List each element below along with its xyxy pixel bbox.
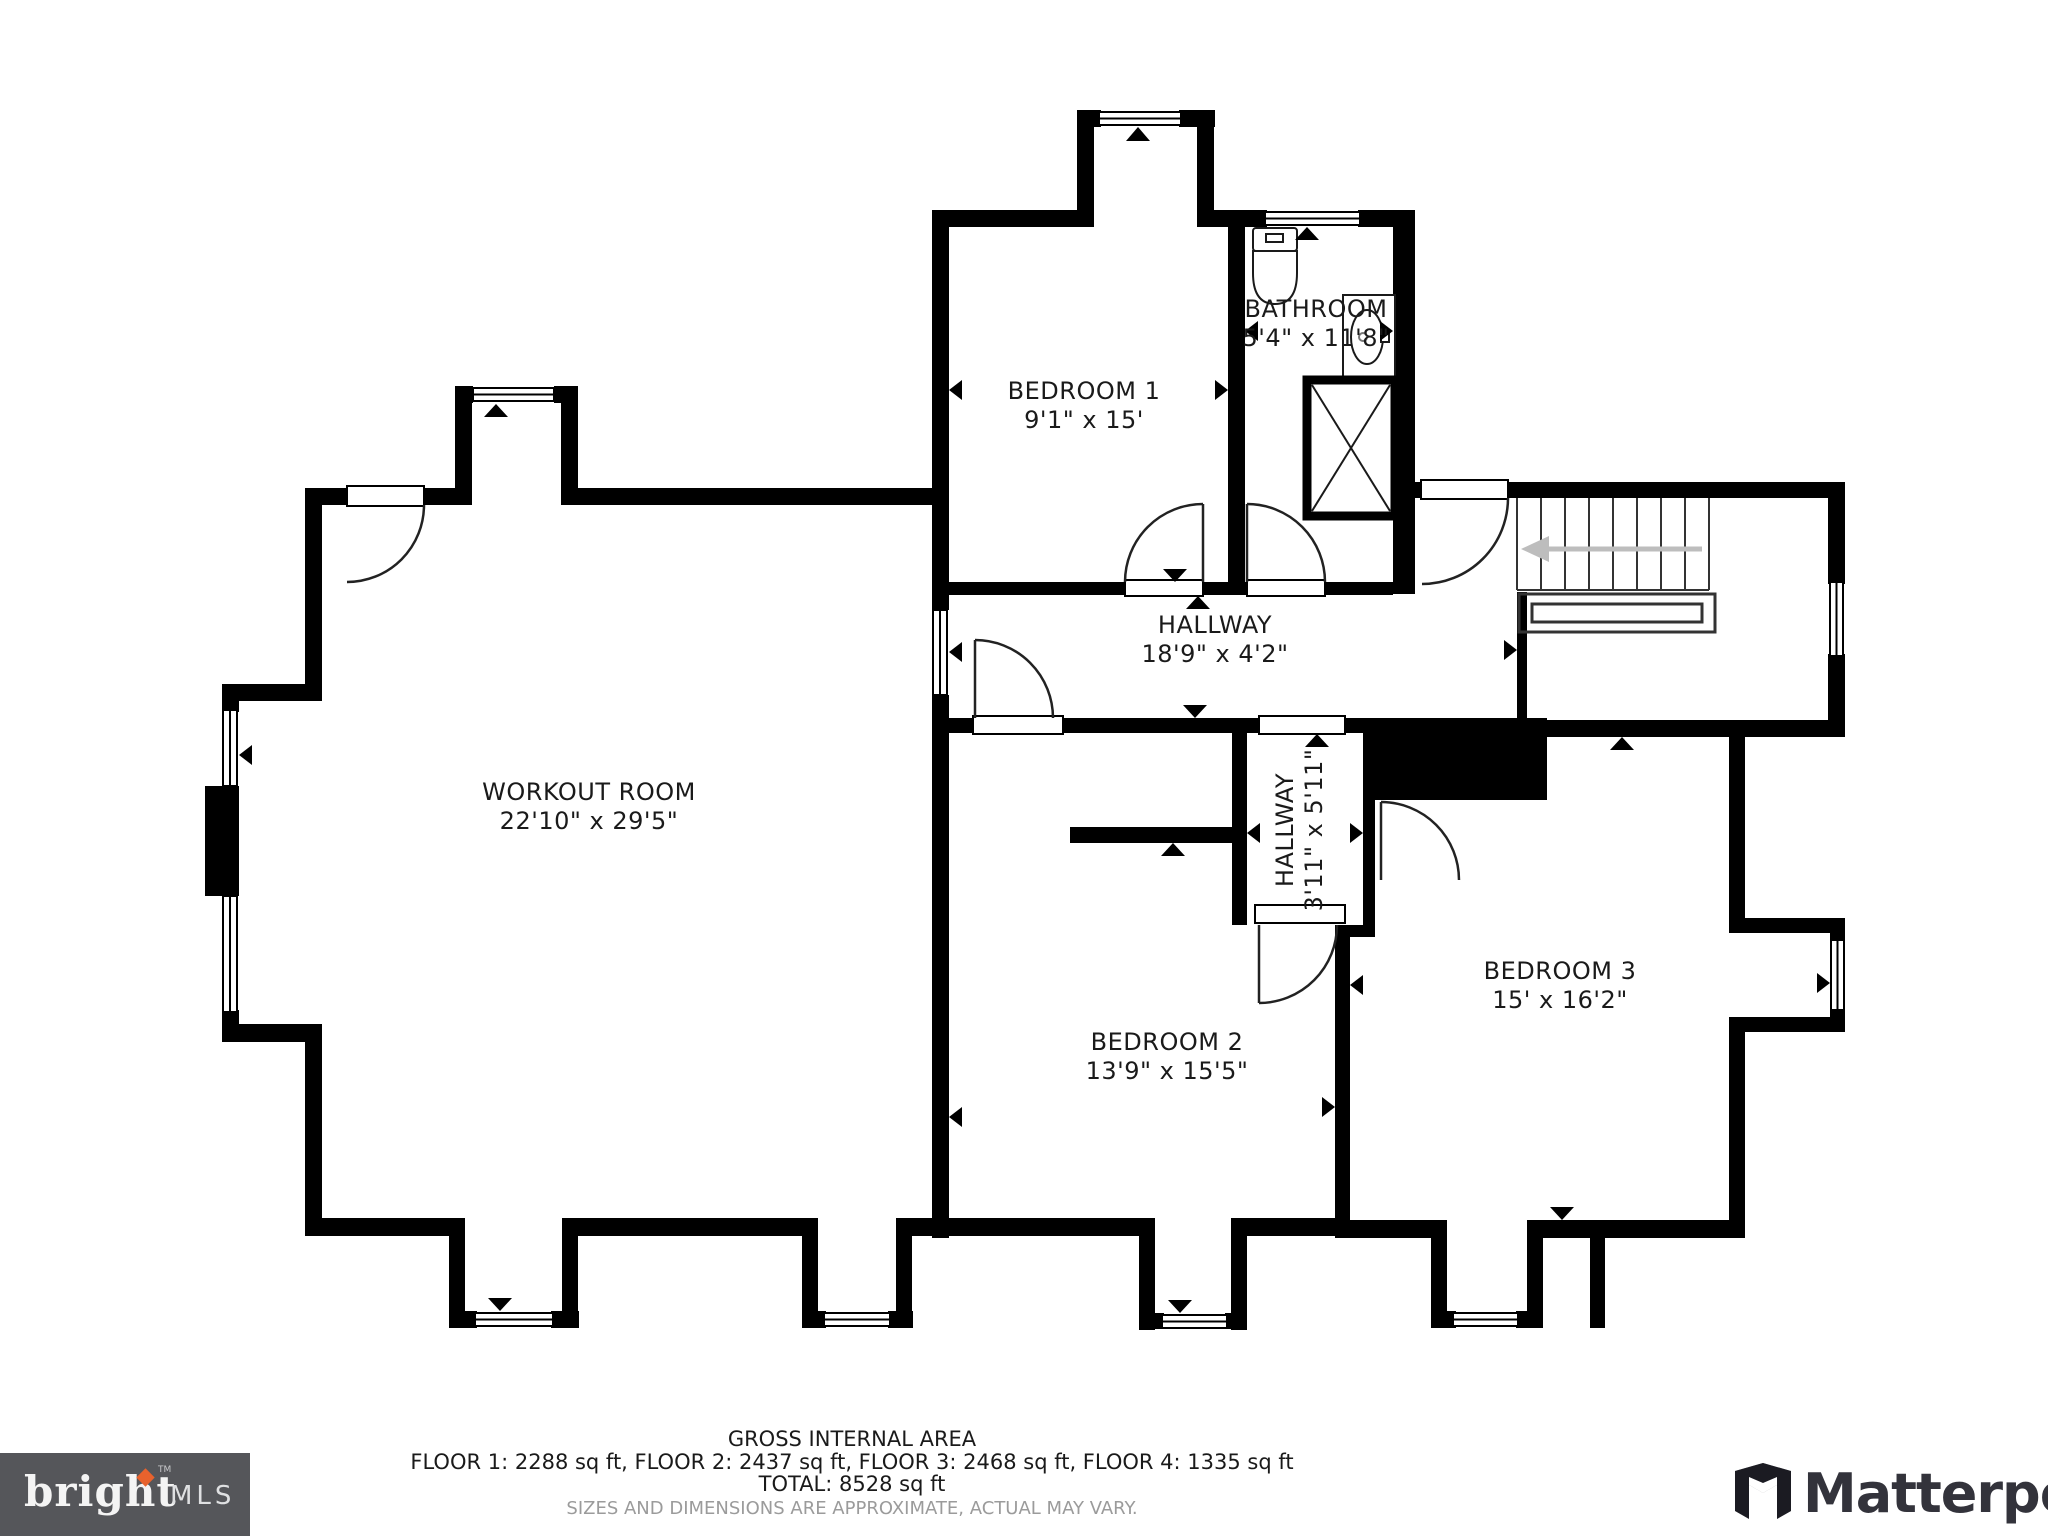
- room-dims: 9'1" x 15': [1008, 406, 1161, 435]
- room-name: BEDROOM 1: [1008, 377, 1161, 406]
- matterport-logo: Matterport: [1733, 1462, 2048, 1528]
- measure-arrow-icon: [1161, 843, 1185, 856]
- room-label-workout-room: WORKOUT ROOM 22'10" x 29'5": [482, 778, 696, 836]
- room-name: HALLWAY: [1141, 611, 1288, 640]
- measure-arrow-icon: [239, 745, 252, 765]
- gross-area-footer: GROSS INTERNAL AREA FLOOR 1: 2288 sq ft,…: [410, 1428, 1293, 1520]
- stairs-direction-arrow-icon: [1521, 536, 1702, 562]
- measure-arrow-icon: [1183, 705, 1207, 718]
- measure-arrow-icon: [1322, 1097, 1335, 1117]
- closet-icon: [1307, 380, 1395, 516]
- doors-group: [347, 498, 1508, 1003]
- measure-arrow-icon: [1186, 596, 1210, 609]
- bright-mls-logo: bright TM MLS: [0, 1453, 250, 1536]
- bright-wordmark: bright: [24, 1467, 177, 1516]
- measure-arrow-icon: [1504, 640, 1517, 660]
- measure-arrow-icon: [1350, 823, 1363, 843]
- measure-arrow-icon: [1126, 127, 1150, 141]
- floorplan-page: WORKOUT ROOM 22'10" x 29'5" BEDROOM 1 9'…: [0, 0, 2048, 1536]
- matterport-cube-icon: [1733, 1462, 1793, 1522]
- footer-disclaimer: SIZES AND DIMENSIONS ARE APPROXIMATE, AC…: [410, 1498, 1293, 1521]
- stairs-group: [1517, 498, 1715, 632]
- measure-arrow-icon: [949, 1107, 962, 1127]
- measure-arrow-icon: [1168, 1300, 1192, 1313]
- room-name: BEDROOM 2: [1086, 1028, 1249, 1057]
- measure-arrow-icon: [949, 380, 962, 400]
- measure-arrow-icon: [949, 642, 962, 662]
- measure-arrow-icon: [484, 404, 508, 417]
- measure-arrow-icon: [1610, 737, 1634, 750]
- room-name: BEDROOM 3: [1484, 957, 1637, 986]
- footer-title: GROSS INTERNAL AREA: [410, 1428, 1293, 1451]
- room-label-bedroom-2: BEDROOM 2 13'9" x 15'5": [1086, 1028, 1249, 1086]
- room-name: HALLWAY: [1271, 749, 1300, 912]
- room-name: BATHROOM: [1242, 295, 1389, 324]
- measure-arrow-icon: [1247, 823, 1260, 843]
- bright-mls-suffix: MLS: [170, 1481, 235, 1511]
- footer-floor-areas: FLOOR 1: 2288 sq ft, FLOOR 2: 2437 sq ft…: [410, 1451, 1293, 1474]
- room-label-hallway: HALLWAY 18'9" x 4'2": [1141, 611, 1288, 669]
- matterport-wordmark: Matterport: [1803, 1462, 2048, 1525]
- toilet-icon: [1253, 228, 1297, 304]
- room-dims: 15' x 16'2": [1484, 986, 1637, 1015]
- measure-arrow-icon: [1215, 380, 1228, 400]
- measure-arrow-icon: [1305, 734, 1329, 747]
- room-label-hallway-2: HALLWAY 3'11" x 5'11": [1271, 749, 1329, 912]
- door-openings-group: [347, 480, 1508, 923]
- measure-arrow-icon: [1350, 975, 1363, 995]
- room-label-bathroom: BATHROOM 5'4" x 11'8": [1242, 295, 1389, 353]
- footer-total-area: TOTAL: 8528 sq ft: [410, 1473, 1293, 1496]
- room-dims: 5'4" x 11'8": [1242, 324, 1389, 353]
- room-dims: 3'11" x 5'11": [1300, 749, 1329, 912]
- room-dims: 13'9" x 15'5": [1086, 1057, 1249, 1086]
- room-dims: 22'10" x 29'5": [482, 807, 696, 836]
- measure-arrow-icon: [488, 1298, 512, 1311]
- measure-arrow-icon: [1295, 227, 1319, 240]
- room-dims: 18'9" x 4'2": [1141, 640, 1288, 669]
- floor-plan-drawing: [0, 0, 2048, 1536]
- room-label-bedroom-1: BEDROOM 1 9'1" x 15': [1008, 377, 1161, 435]
- measure-arrow-icon: [1817, 973, 1830, 993]
- room-name: WORKOUT ROOM: [482, 778, 696, 807]
- measure-arrow-icon: [1550, 1207, 1574, 1220]
- bright-trademark: TM: [158, 1465, 171, 1475]
- room-label-bedroom-3: BEDROOM 3 15' x 16'2": [1484, 957, 1637, 1015]
